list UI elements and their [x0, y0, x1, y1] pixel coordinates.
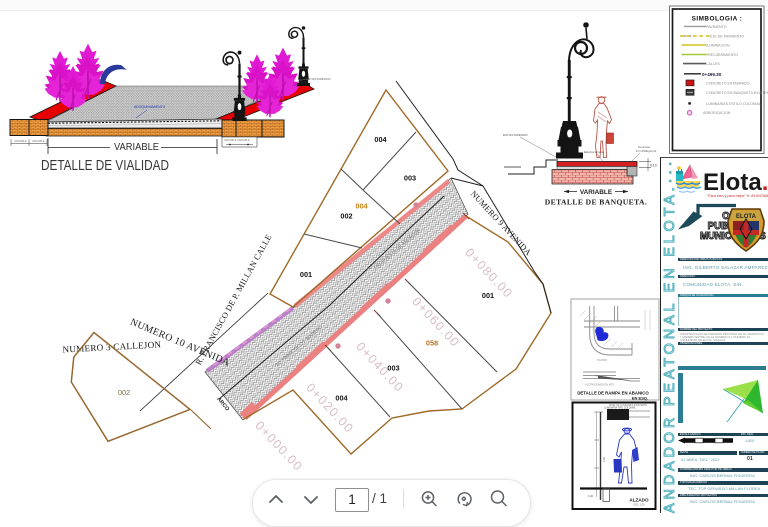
svg-text:EJE DE PAVIMENTO: EJE DE PAVIMENTO [710, 34, 744, 38]
svg-text:001: 001 [300, 270, 312, 279]
svg-text:PLANTA: PLANTA [597, 358, 607, 362]
svg-text:ACOTACIONES EN MTS.: ACOTACIONES EN MTS. [585, 383, 615, 387]
svg-text:DETALLE DE BANQUETA.: DETALLE DE BANQUETA. [545, 198, 647, 207]
svg-text:004: 004 [355, 202, 368, 211]
svg-text:0+000.00: 0+000.00 [252, 419, 305, 475]
svg-text:LUMINARIA TIPO COLONIAL: LUMINARIA TIPO COLONIAL [604, 406, 637, 409]
svg-text:VARIABLE: VARIABLE [580, 189, 613, 196]
svg-text:0+499.30: 0+499.30 [702, 72, 722, 77]
svg-text:CONCRETO EN BANQUETA EXISTENTE: CONCRETO EN BANQUETA EXISTENTE [706, 91, 768, 95]
svg-text:002: 002 [340, 212, 352, 221]
svg-text:0.40: 0.40 [588, 494, 594, 498]
svg-text:0+020.00: 0+020.00 [303, 381, 356, 437]
svg-text:VARIABLE: VARIABLE [114, 142, 159, 153]
svg-text:CONCRETO ESTAMPADO: CONCRETO ESTAMPADO [706, 82, 750, 86]
svg-text:EN ESQ.: EN ESQ. [632, 396, 648, 401]
svg-text:ARBORIZACION: ARBORIZACION [703, 111, 731, 115]
svg-text:EST.ESTAMPADO: EST.ESTAMPADO [503, 133, 528, 137]
svg-text:058: 058 [426, 339, 438, 348]
svg-text:VARIABLE VARIABLE: VARIABLE VARIABLE [224, 138, 250, 142]
svg-text:003: 003 [404, 174, 416, 183]
svg-text:002: 002 [118, 388, 130, 397]
svg-text:001: 001 [482, 291, 494, 300]
svg-text:ILUMINACION: ILUMINACION [706, 43, 730, 47]
svg-text:ESC. 1:20: ESC. 1:20 [634, 504, 646, 507]
svg-text:Electrocantado: Electrocantado [584, 150, 604, 154]
svg-text:LUMINARIAS ESTILO COLONIAL: LUMINARIAS ESTILO COLONIAL [706, 102, 761, 106]
svg-text:CALLES: CALLES [706, 62, 720, 66]
svg-text:F'c=150kg/cm2: F'c=150kg/cm2 [636, 149, 657, 153]
svg-text:0.10: 0.10 [650, 164, 657, 168]
svg-text:VARIABLE: VARIABLE [14, 139, 27, 143]
svg-text:VARIABLE: VARIABLE [32, 139, 45, 143]
svg-text:2.50: 2.50 [602, 456, 606, 462]
svg-text:ADOQUINAMIENTO: ADOQUINAMIENTO [134, 105, 166, 109]
svg-text:SIMBOLOGIA :: SIMBOLOGIA : [692, 16, 743, 23]
svg-text:DETALLE DE VIALIDAD: DETALLE DE VIALIDAD [41, 158, 169, 174]
svg-text:RECUBRIMIENTO: RECUBRIMIENTO [708, 53, 738, 57]
svg-text:004: 004 [335, 394, 348, 403]
svg-text:ALZADO: ALZADO [629, 498, 649, 503]
svg-text:004: 004 [374, 135, 387, 144]
svg-text:PAVIMENTO: PAVIMENTO [706, 25, 727, 29]
svg-text:EST.ESTAMPADO: EST.ESTAMPADO [306, 77, 331, 81]
